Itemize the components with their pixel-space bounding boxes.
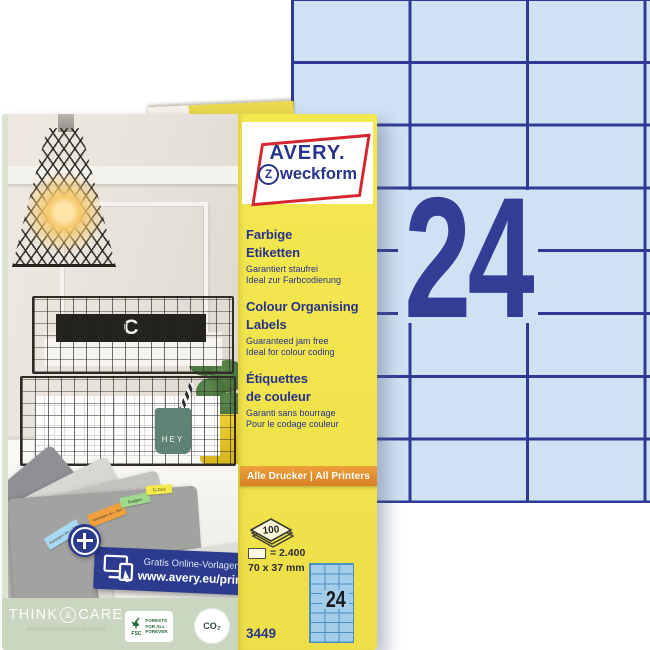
z-circle-icon: Z xyxy=(258,164,279,185)
folder-label-yellow: To Do's xyxy=(146,484,173,495)
fsc-badge: FSC FORESTS FOR ALL FOREVER xyxy=(125,611,173,642)
title-fr-line2: de couleur xyxy=(246,388,370,406)
product-shot: 24 C xyxy=(0,0,650,650)
title-en-line2: Labels xyxy=(246,316,370,334)
ampersand-icon: & xyxy=(60,607,76,623)
title-de-line1: Farbige xyxy=(246,226,370,244)
co2-text: CO₂ xyxy=(203,621,221,631)
sheet-stack-icon: 100 xyxy=(250,516,296,548)
think-text: THINK xyxy=(9,607,59,623)
mug: HEY xyxy=(155,408,191,454)
printer-banner: Alle Drucker | All Printers xyxy=(240,466,377,486)
brand-zweckform: Zweckform xyxy=(258,164,357,185)
fsc-line: FOREVER xyxy=(145,629,167,634)
title-fr-line1: Étiquettes xyxy=(246,370,370,388)
sub-fr-1: Garanti sans bourrage xyxy=(246,408,370,420)
co2-badge: CO₂ xyxy=(194,608,230,644)
letter-tray-top: C xyxy=(32,296,234,374)
svg-text:100: 100 xyxy=(262,524,280,537)
tray-wires xyxy=(34,298,232,372)
product-sku: 3449 xyxy=(246,626,276,641)
lifestyle-photo: C HEY Kampagne Jan – Jun Kampagne Jul – … xyxy=(2,114,238,598)
wire-lamp xyxy=(12,128,116,267)
care-text: CARE xyxy=(78,607,123,623)
sub-en-1: Guaranteed jam free xyxy=(246,336,370,348)
fsc-text: FSC xyxy=(130,632,142,637)
mini-count-number: 24 xyxy=(326,588,346,611)
sub-de-1: Garantiert staufrei xyxy=(246,264,370,276)
promo-ribbon: Gratis Online-Vorlagen: www.avery.eu/pri… xyxy=(93,547,238,596)
spec-size: 70 x 37 mm xyxy=(248,562,305,574)
title-en-line1: Colour Organising xyxy=(246,298,370,316)
label-icon xyxy=(248,548,266,559)
label-count-number: 24 xyxy=(405,172,532,344)
spec-total-row: = 2.400 xyxy=(248,547,305,559)
label-count-overlay: 24 xyxy=(398,190,538,323)
sub-en-2: Ideal for colour coding xyxy=(246,347,370,359)
title-de-line2: Etiketten xyxy=(246,244,370,262)
product-box: C HEY Kampagne Jan – Jun Kampagne Jul – … xyxy=(2,114,377,650)
sustainability-url: www.avery.eu/sustainability xyxy=(12,626,120,633)
sustainability-band: THINK&CARE www.avery.eu/sustainability F… xyxy=(2,598,238,650)
brand-zweckform-text: weckform xyxy=(280,164,357,184)
promo-line2: www.avery.eu/print xyxy=(137,569,238,588)
package-edge xyxy=(2,114,8,598)
brand-avery: AVERY. xyxy=(269,142,345,164)
brand-logo: AVERY. Zweckform xyxy=(242,122,373,204)
fsc-tree-icon xyxy=(130,617,142,630)
spec-total: = 2.400 xyxy=(270,547,305,559)
sub-de-2: Ideal zur Farbcodierung xyxy=(246,275,370,287)
fsc-line: FORESTS xyxy=(145,618,167,623)
mini-sheet-preview: 24 xyxy=(309,563,354,643)
mug-text: HEY xyxy=(162,435,184,444)
info-panel: AVERY. Zweckform Farbige Etiketten Garan… xyxy=(238,114,377,650)
mini-count-overlay: 24 xyxy=(322,590,349,609)
devices-icon xyxy=(102,554,137,583)
sub-fr-2: Pour le codage couleur xyxy=(246,419,370,431)
think-care-logo: THINK&CARE xyxy=(12,607,120,623)
plus-icon xyxy=(68,524,101,557)
